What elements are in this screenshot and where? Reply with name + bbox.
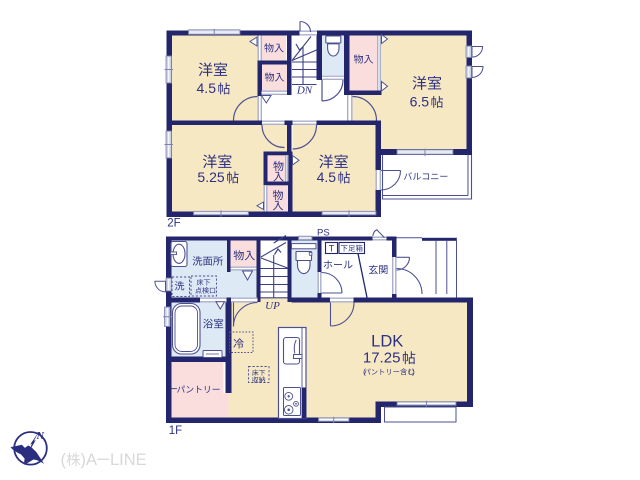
svg-text:T: T — [329, 243, 335, 253]
svg-text:4.5: 4.5 — [197, 80, 217, 96]
svg-text:4.5: 4.5 — [317, 169, 337, 185]
svg-text:DN: DN — [296, 84, 313, 96]
svg-text:1F: 1F — [169, 425, 182, 437]
svg-text:PS: PS — [317, 228, 330, 239]
svg-text:UP: UP — [265, 300, 280, 312]
svg-text:5.25: 5.25 — [197, 169, 224, 185]
svg-text:)A: )A — [81, 451, 98, 469]
svg-text:N: N — [36, 431, 45, 442]
svg-text:): ) — [412, 368, 415, 377]
svg-text:17.25: 17.25 — [363, 350, 401, 367]
svg-text:6.5: 6.5 — [410, 93, 430, 109]
svg-text:LINE: LINE — [110, 451, 147, 469]
svg-text:2F: 2F — [167, 218, 180, 230]
svg-text:(: ( — [61, 451, 67, 469]
svg-text:LDK: LDK — [371, 332, 403, 350]
